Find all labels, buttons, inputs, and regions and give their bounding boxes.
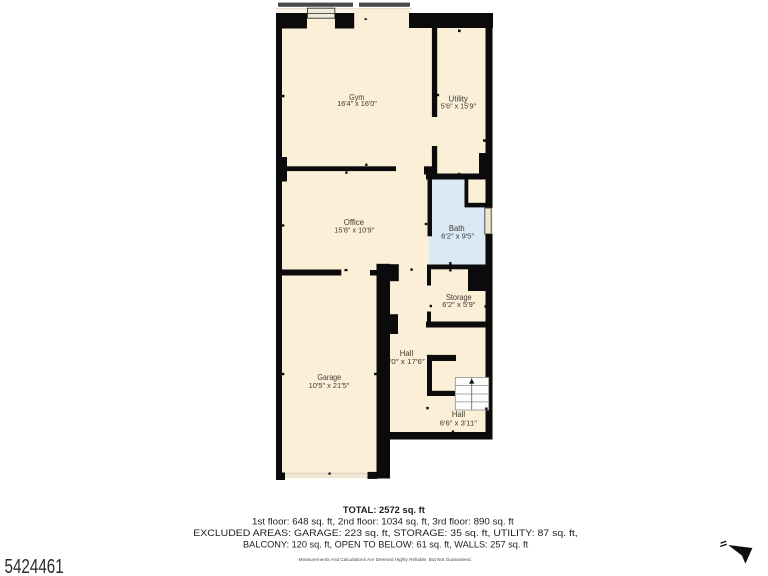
- svg-text:6′6″ x 3′11″: 6′6″ x 3′11″: [440, 419, 478, 428]
- svg-text:15′8″ x 10′9″: 15′8″ x 10′9″: [334, 226, 374, 235]
- svg-text:EXCLUDED AREAS: GARAGE: 223 sq: EXCLUDED AREAS: GARAGE: 223 sq. ft, STOR…: [193, 528, 577, 539]
- svg-text:BALCONY: 120 sq. ft, OPEN TO B: BALCONY: 120 sq. ft, OPEN TO BELOW: 61 s…: [243, 539, 528, 550]
- svg-text:Measurements And Calculations: Measurements And Calculations Are Deemed…: [299, 557, 472, 562]
- svg-text:6′2″ x 9′5″: 6′2″ x 9′5″: [441, 231, 474, 240]
- svg-text:16′4″ x 16′0″: 16′4″ x 16′0″: [337, 99, 377, 108]
- svg-text:1st floor: 648 sq. ft, 2nd flo: 1st floor: 648 sq. ft, 2nd floor: 1034 s…: [252, 517, 514, 528]
- svg-text:Hall: Hall: [452, 410, 465, 419]
- svg-text:5424461: 5424461: [5, 556, 64, 576]
- svg-text:TOTAL: 2572 sq. ft: TOTAL: 2572 sq. ft: [343, 505, 426, 516]
- svg-text:5′6″ x 15′9″: 5′6″ x 15′9″: [441, 101, 477, 110]
- svg-text:2′0″ x 17′6″: 2′0″ x 17′6″: [385, 357, 425, 366]
- svg-text:6′2″ x 5′9″: 6′2″ x 5′9″: [442, 300, 476, 309]
- svg-text:10′5″ x 21′5″: 10′5″ x 21′5″: [309, 381, 350, 390]
